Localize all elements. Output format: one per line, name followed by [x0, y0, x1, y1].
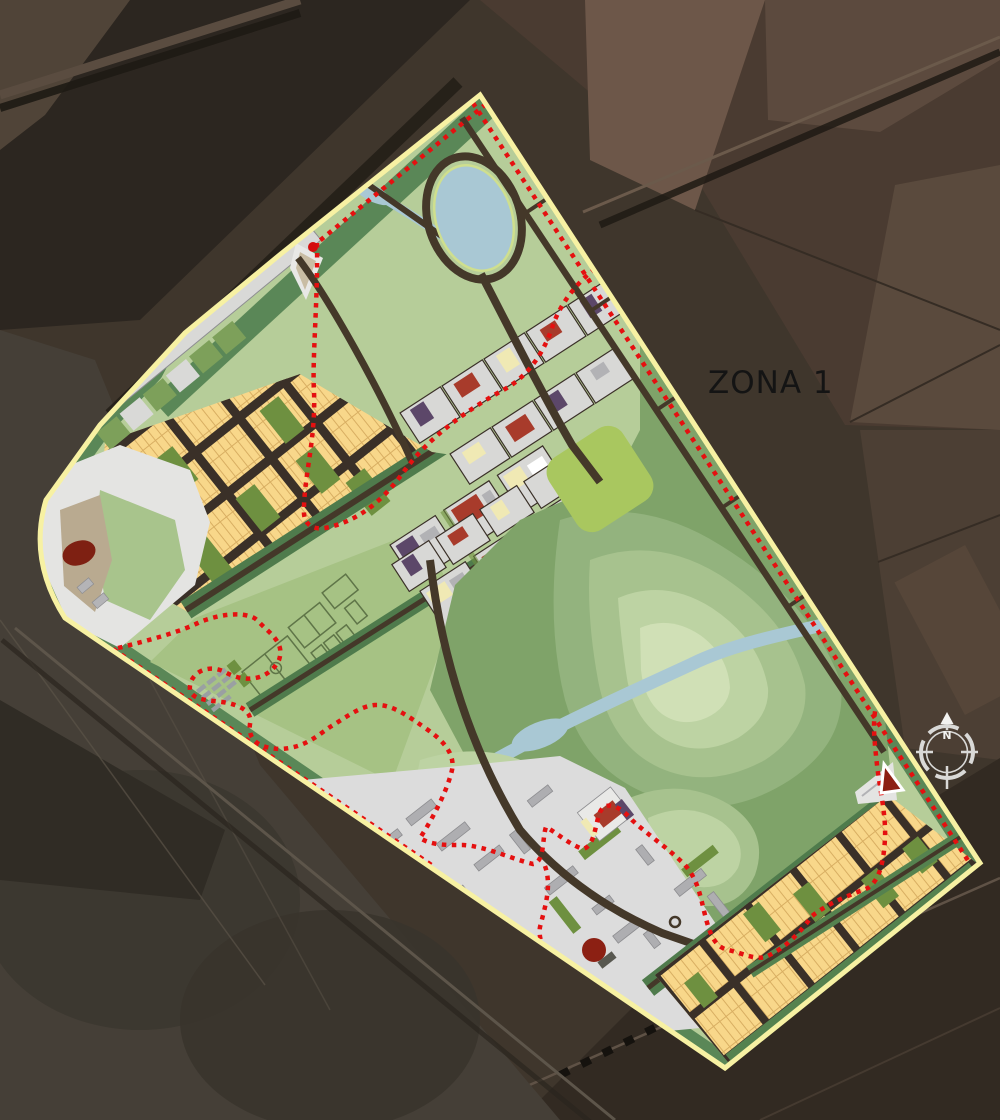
compass-north-label: N	[942, 729, 951, 742]
water-tower-red	[582, 938, 606, 962]
map-canvas: N ZONA 1	[0, 0, 1000, 1120]
masterplan-map: N ZONA 1	[0, 0, 1000, 1120]
red-node	[308, 242, 318, 252]
roundabout	[670, 917, 680, 927]
zone-label: ZONA 1	[708, 365, 834, 401]
